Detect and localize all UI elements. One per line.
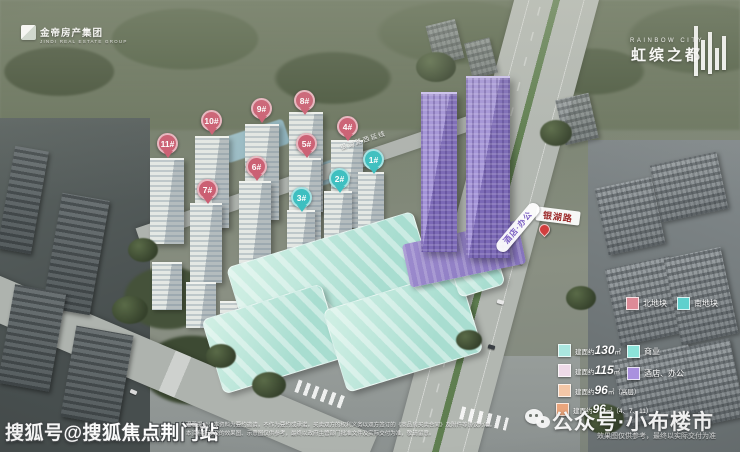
marker-label: 8# <box>300 96 309 106</box>
legend-plots: 北地块 南地块 <box>626 297 718 310</box>
building-marker: 9# <box>251 98 272 119</box>
legend-swatch-north <box>626 297 639 310</box>
developer-name: 金帝房产集团 <box>40 25 128 39</box>
road-label-yinhu: 银湖路 <box>535 206 580 225</box>
tower-11 <box>150 158 184 244</box>
developer-subtitle: JINDI REAL ESTATE GROUP <box>40 39 128 44</box>
developer-logo: 金帝房产集团 JINDI REAL ESTATE GROUP <box>21 25 128 44</box>
building-marker: 11# <box>157 133 178 154</box>
project-logo-bars-icon <box>694 26 726 76</box>
building-marker: 5# <box>296 133 317 154</box>
legend-use-commercial: 商业 <box>627 345 660 358</box>
marker-label: 10# <box>204 116 218 126</box>
marker-label: 5# <box>302 139 311 149</box>
building-marker: 1# <box>363 149 384 170</box>
tree <box>566 286 596 310</box>
building-marker: 4# <box>337 116 358 137</box>
hotel-tower-2 <box>466 76 510 258</box>
project-name-zh: 虹缤之都 <box>630 44 704 65</box>
watermark-note: 效果图仅供参考，最终以实际交付为准 <box>597 431 716 441</box>
legend-area-115: 建面约115㎡ <box>558 363 620 377</box>
marker-label: 9# <box>257 104 266 114</box>
marker-label: 6# <box>252 162 261 172</box>
location-pin-icon <box>537 222 553 238</box>
legend-swatch <box>558 364 571 377</box>
legend-label: 北地块 <box>643 298 667 309</box>
tree <box>252 372 286 398</box>
marker-label: 1# <box>369 155 378 165</box>
legend-swatch <box>627 345 640 358</box>
tree <box>416 52 456 82</box>
tree <box>456 330 482 350</box>
legend-swatch <box>627 367 640 380</box>
aerial-rendering: 11# 10# 9# 8# 7# 6# 5# 4# 3# 2# 1# 银湖路 银… <box>0 0 740 452</box>
tree <box>206 344 236 368</box>
developer-logo-icon <box>21 25 36 40</box>
building-marker: 7# <box>197 179 218 200</box>
tree <box>112 296 148 324</box>
legend-swatch <box>558 344 571 357</box>
legend-area-130: 建面约130㎡ <box>558 343 621 357</box>
disclaimer-text: 温馨提示：本资料为要约邀请，不作为要约或承诺，买卖双方的权利义务以双方签订的《商… <box>186 422 540 439</box>
project-logo: RAINBOW CITY 虹缤之都 <box>630 38 704 65</box>
marker-label: 7# <box>203 185 212 195</box>
forest-band <box>0 0 740 130</box>
marker-label: 11# <box>161 139 175 149</box>
legend-swatch <box>558 384 571 397</box>
tower-6 <box>239 181 271 265</box>
legend-area-96a: 建面约96㎡（高层） <box>558 383 640 397</box>
building-marker: 6# <box>246 156 267 177</box>
building-marker: 3# <box>291 187 312 208</box>
tree <box>540 120 572 146</box>
marker-label: 3# <box>297 193 306 203</box>
marker-label: 4# <box>343 122 352 132</box>
tower-7 <box>190 203 222 283</box>
tree <box>128 238 158 262</box>
marker-label: 2# <box>335 174 344 184</box>
legend-use-hotel-office: 酒店、办公 <box>627 367 684 380</box>
building-marker: 2# <box>329 168 350 189</box>
lowrise <box>152 262 182 310</box>
legend-label: 南地块 <box>694 298 718 309</box>
building-marker: 10# <box>201 110 222 131</box>
legend-swatch-south <box>677 297 690 310</box>
hotel-tower-1 <box>421 92 457 252</box>
building-marker: 8# <box>294 90 315 111</box>
